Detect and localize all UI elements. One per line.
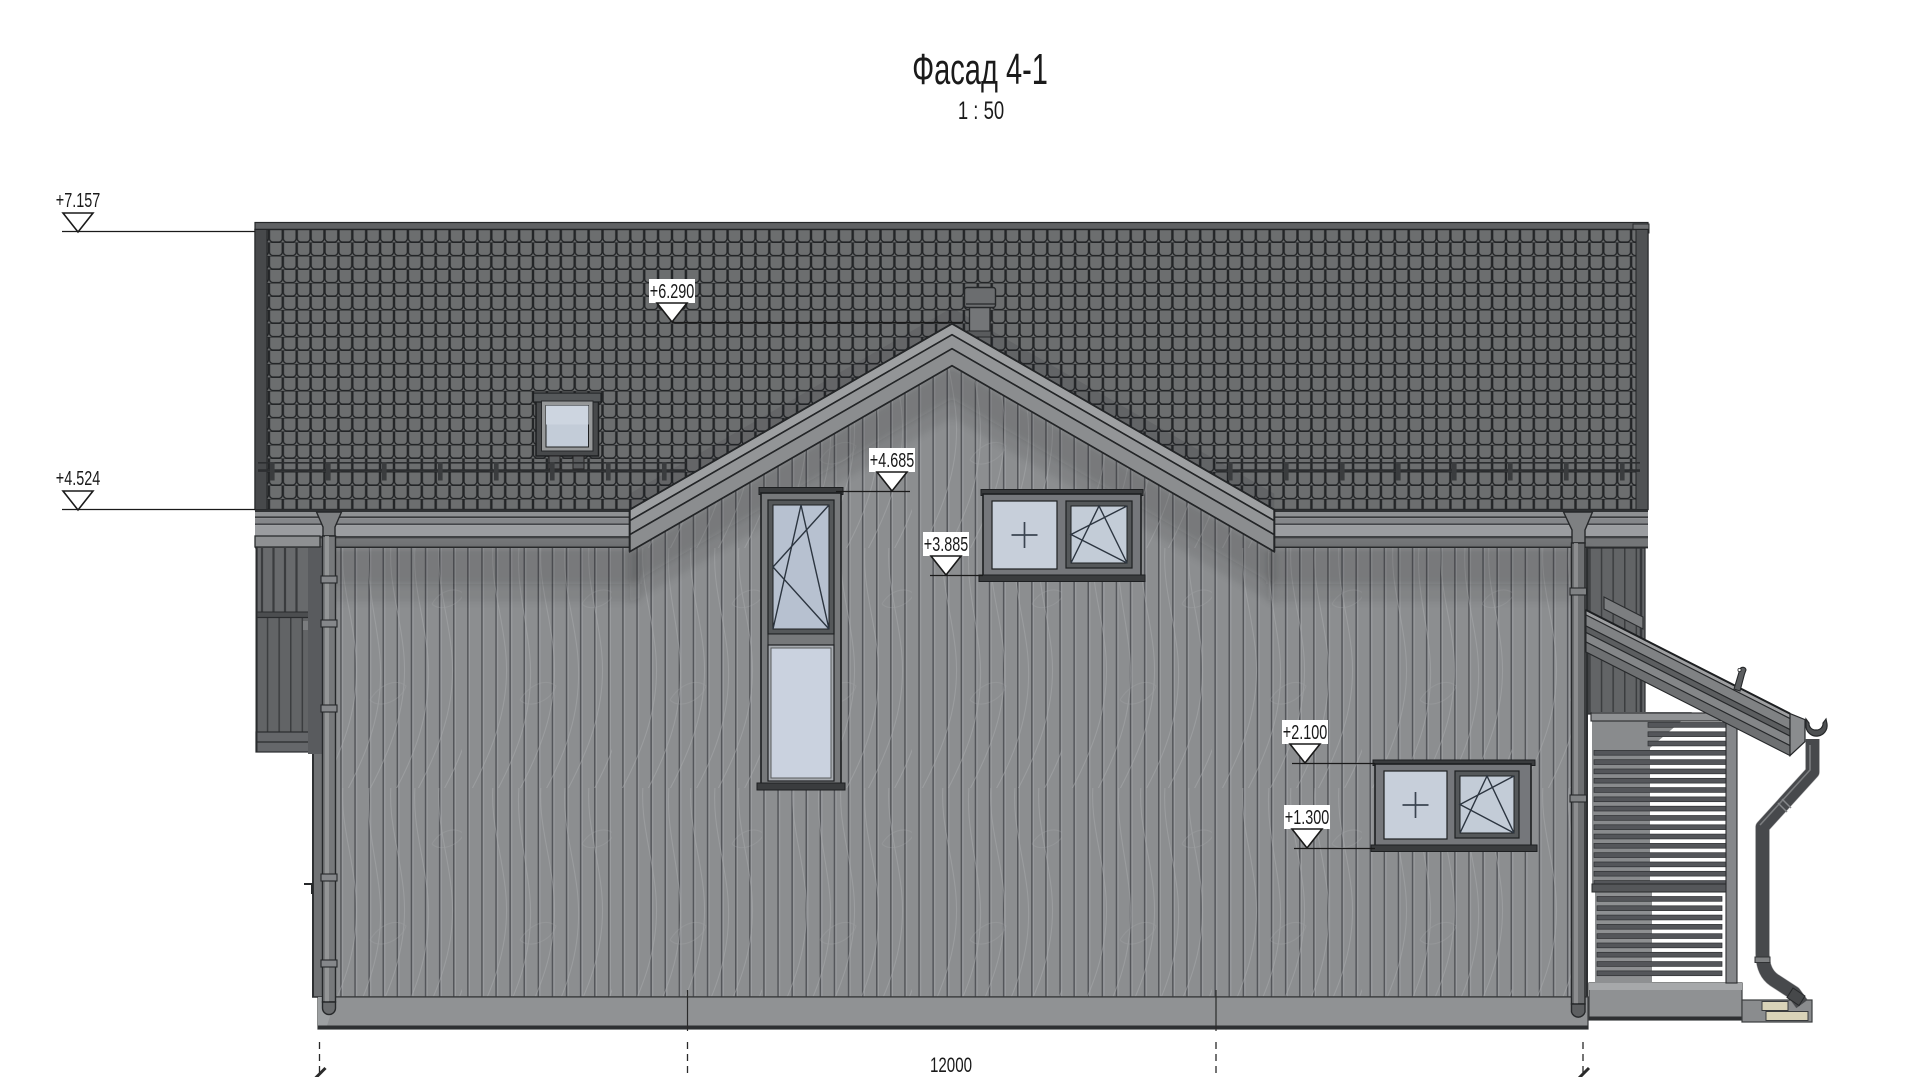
svg-text:Фасад 4-1: Фасад 4-1 (912, 44, 1048, 94)
svg-text:+4.524: +4.524 (56, 467, 101, 490)
svg-text:+7.157: +7.157 (56, 189, 100, 212)
svg-text:12000: 12000 (930, 1052, 972, 1076)
svg-text:1 : 50: 1 : 50 (958, 96, 1004, 124)
svg-text:+3.885: +3.885 (924, 533, 968, 556)
svg-text:+1.300: +1.300 (1285, 806, 1329, 829)
svg-text:+4.685: +4.685 (870, 449, 914, 472)
svg-text:+2.100: +2.100 (1283, 721, 1327, 744)
svg-text:+6.290: +6.290 (650, 280, 694, 303)
